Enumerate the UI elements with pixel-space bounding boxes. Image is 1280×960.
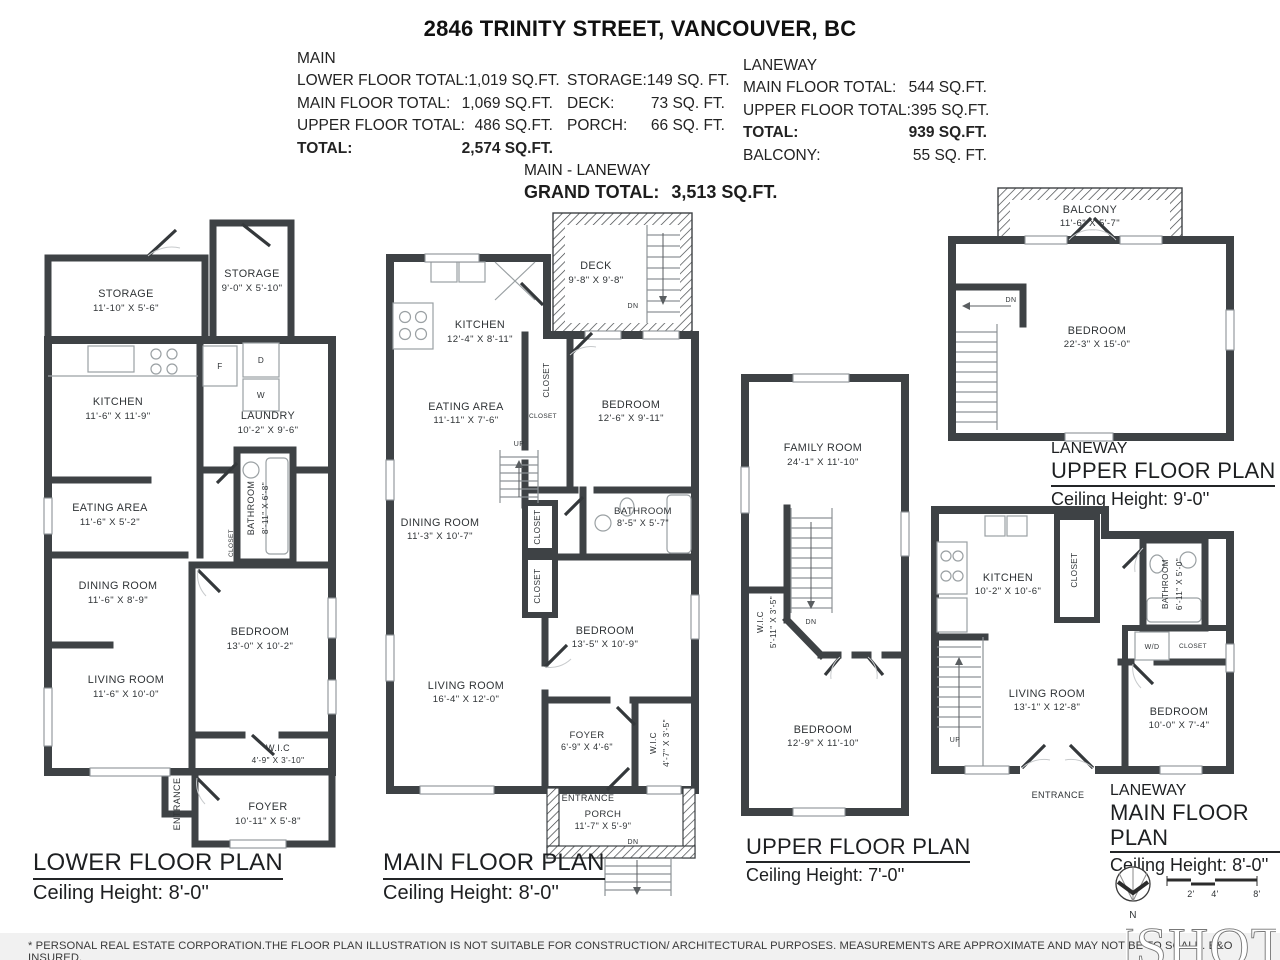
room-dims-living: 11'-6" X 10'-0" (93, 689, 159, 700)
room-label-living: LIVING ROOM (428, 680, 504, 692)
room-label-bedroom: BEDROOM (1150, 706, 1209, 718)
summary-row: DECK:73 SQ. FT. (567, 93, 725, 115)
room-label-wic: W.I.C (649, 732, 658, 754)
room-label-wic: W.I.C (756, 611, 765, 633)
room-label-foyer: FOYER (248, 801, 287, 813)
row-value: 939 SQ.FT. (909, 122, 987, 144)
row-value: 1,069 SQ.FT. (462, 93, 553, 115)
floor-plan-sheet: 2846 TRINITY STREET, VANCOUVER, BC MAIN … (0, 0, 1280, 960)
room-dims-family: 24'-1" X 11'-10" (787, 457, 859, 468)
room-dims-laundry: 10'-2" X 9'-6" (238, 425, 299, 436)
room-dims-bedroom: 12'-9" X 11'-10" (787, 738, 859, 749)
room-label-family: FAMILY ROOM (784, 442, 862, 454)
row-label: LOWER FLOOR TOTAL: (297, 70, 468, 92)
deck (553, 213, 692, 335)
row-label: UPPER FLOOR TOTAL: (743, 100, 911, 122)
entrance-label: ENTRANCE (562, 793, 615, 803)
grand-total-block: MAIN - LANEWAY GRAND TOTAL:3,513 SQ.FT. (524, 162, 777, 203)
lower-plan-caption: LOWER FLOOR PLAN Ceiling Height: 8'-0'' (33, 850, 283, 904)
fridge-label: F (217, 362, 222, 371)
room-label-bathroom: BATHROOM (246, 481, 256, 536)
lower-plan-title: LOWER FLOOR PLAN (33, 850, 283, 880)
scale-label-4: 4' (1211, 889, 1219, 899)
room-label-storage1: STORAGE (98, 288, 153, 300)
row-label: MAIN FLOOR TOTAL: (297, 93, 450, 115)
brand-logo-text: ISHOT (1126, 917, 1276, 960)
room-dims-bedroom1: 12'-6" X 9'-11" (598, 413, 664, 424)
room-dims-living: 13'-1" X 12'-8" (1014, 702, 1081, 713)
room-label-kitchen: KITCHEN (455, 319, 505, 331)
room-dims-dining: 11'-6" X 8'-9" (88, 595, 148, 606)
summary-row: UPPER FLOOR TOTAL:486 SQ.FT. (297, 115, 553, 137)
closet-label: CLOSET (1070, 552, 1079, 587)
laneway-main-title: MAIN FLOOR PLAN (1110, 801, 1280, 853)
room-dims-bedroom: 10'-0" X 7'-4" (1149, 720, 1210, 731)
grand-total-value: 3,513 SQ.FT. (671, 182, 777, 202)
summary-row-total: TOTAL:2,574 SQ.FT. (297, 138, 553, 160)
row-label: DECK: (567, 93, 614, 115)
room-dims-porch: 11'-7" X 5'-9" (575, 821, 632, 831)
dn-label: DN (628, 303, 639, 310)
room-label-dining: DINING ROOM (79, 580, 158, 592)
summary-row-total: TOTAL:939 SQ.FT. (743, 122, 987, 144)
up-label: UP (950, 737, 961, 744)
scale-bar: 2' 4' 8' (1167, 876, 1261, 899)
disclaimer-text: * PERSONAL REAL ESTATE CORPORATION.THE F… (28, 940, 1280, 960)
room-dims-wic: 4'-9" X 3'-10" (252, 756, 305, 765)
summary-main-col2: STORAGE:149 SQ. FT. DECK:73 SQ. FT. PORC… (567, 70, 725, 160)
room-label-bedroom: BEDROOM (794, 724, 853, 736)
room-label-balcony: BALCONY (1063, 204, 1117, 216)
brand-logo: ISHOT (1126, 914, 1276, 960)
row-value: 66 SQ. FT. (651, 115, 725, 137)
room-dims-foyer: 6'-9" X 4'-6" (561, 742, 613, 752)
room-label-porch: PORCH (585, 809, 622, 820)
dryer-label: D (258, 356, 264, 365)
washer-dryer-label: W/D (1145, 644, 1160, 651)
entrance-label: ENTRANCE (1032, 790, 1085, 800)
laneway-upper-title: UPPER FLOOR PLAN (1051, 459, 1275, 487)
summary-laneway-heading: LANEWAY (743, 55, 987, 77)
room-dims-wic: 5'-11" X 3'-5" (769, 596, 778, 648)
room-dims-balcony: 11'-6" X 5'-7" (1060, 218, 1120, 229)
grand-total-subtitle: MAIN - LANEWAY (524, 162, 777, 180)
room-label-kitchen: KITCHEN (93, 396, 143, 408)
summary-row: MAIN FLOOR TOTAL:544 SQ.FT. (743, 77, 987, 99)
room-dims-living: 16'-4" X 12'-0" (433, 694, 500, 705)
room-label-eating: EATING AREA (72, 502, 148, 514)
room-dims-kitchen: 12'-4" X 8'-11" (447, 334, 513, 345)
row-value: 2,574 SQ.FT. (462, 138, 553, 160)
room-dims-bedroom: 22'-3" X 15'-0" (1064, 339, 1131, 350)
summary-row: PORCH:66 SQ. FT. (567, 115, 725, 137)
room-dims-wic: 4'-7" X 3'-5" (662, 719, 671, 767)
scale-label-8: 8' (1253, 889, 1261, 899)
room-dims-bathroom: 6'-11" X 5'-0" (1175, 558, 1184, 610)
room-label-eating: EATING AREA (428, 401, 504, 413)
summary-laneway: LANEWAY MAIN FLOOR TOTAL:544 SQ.FT. UPPE… (743, 55, 987, 167)
scale-label-2: 2' (1187, 889, 1195, 899)
room-label-bedroom1: BEDROOM (602, 399, 661, 411)
main-plan-caption: MAIN FLOOR PLAN Ceiling Height: 8'-0'' (383, 850, 605, 904)
main-plan-title: MAIN FLOOR PLAN (383, 850, 605, 880)
grand-total-label: GRAND TOTAL: (524, 182, 659, 202)
laneway-upper-tag: LANEWAY (1051, 440, 1275, 458)
grand-total-line: GRAND TOTAL:3,513 SQ.FT. (524, 182, 777, 203)
upper-plan-title: UPPER FLOOR PLAN (746, 835, 970, 863)
washer-label: W (257, 391, 265, 400)
compass-icon: N (1116, 867, 1150, 921)
row-label: TOTAL: (743, 122, 798, 144)
row-value: 55 SQ. FT. (913, 145, 987, 167)
room-label-living: LIVING ROOM (88, 674, 164, 686)
closet-label: CLOSET (228, 529, 235, 557)
room-dims-eating: 11'-6" X 5'-2" (80, 517, 140, 528)
room-label-foyer: FOYER (569, 730, 604, 741)
dn-label: DN (628, 839, 639, 846)
summary-row: LOWER FLOOR TOTAL:1,019 SQ.FT. (297, 70, 553, 92)
summary-row: MAIN FLOOR TOTAL:1,069 SQ.FT. (297, 93, 553, 115)
room-dims-foyer: 10'-11" X 5'-8" (235, 816, 301, 827)
summary-row: STORAGE:149 SQ. FT. (567, 70, 725, 92)
room-label-bedroom: BEDROOM (231, 626, 290, 638)
room-dims-storage1: 11'-10" X 5'-6" (93, 303, 159, 314)
room-dims-kitchen: 10'-2" X 10'-6" (975, 586, 1042, 597)
closet-label-small: CLOSET (529, 413, 557, 420)
room-label-bedroom2: BEDROOM (576, 625, 635, 637)
upper-floor-plan-svg: FAMILY ROOM 24'-1" X 11'-10" DN W.I.C 5'… (735, 372, 920, 832)
row-label: MAIN FLOOR TOTAL: (743, 77, 896, 99)
room-label-laundry: LAUNDRY (241, 410, 295, 422)
page-title: 2846 TRINITY STREET, VANCOUVER, BC (0, 16, 1280, 42)
lower-plan-ceiling: Ceiling Height: 8'-0'' (33, 882, 283, 904)
room-dims-eating: 11'-11" X 7'-6" (433, 415, 498, 426)
room-label-wic: W.I.C (266, 743, 290, 753)
upper-plan-caption: UPPER FLOOR PLAN Ceiling Height: 7'-0'' (746, 835, 970, 885)
row-label: STORAGE: (567, 70, 647, 92)
room-label-kitchen: KITCHEN (983, 572, 1033, 584)
room-dims-bedroom2: 13'-5" X 10'-9" (572, 639, 639, 650)
row-label: UPPER FLOOR TOTAL: (297, 115, 465, 137)
room-label-bathroom: BATHROOM (1161, 559, 1170, 609)
room-label-storage2: STORAGE (224, 268, 279, 280)
main-floor-plan-svg: DECK 9'-8" X 9'-8" DN KITCHEN 12'-4" X 8… (375, 205, 710, 905)
lower-floor-plan-svg: STORAGE 11'-10" X 5'-6" STORAGE 9'-0" X … (30, 218, 340, 853)
row-value: 1,019 SQ.FT. (468, 70, 559, 92)
room-dims-kitchen: 11'-6" X 11'-9" (85, 411, 150, 422)
row-value: 544 SQ.FT. (909, 77, 987, 99)
room-dims-deck: 9'-8" X 9'-8" (568, 275, 623, 286)
summary-main: MAIN LOWER FLOOR TOTAL:1,019 SQ.FT. MAIN… (297, 48, 725, 160)
room-label-bathroom: BATHROOM (614, 506, 672, 517)
room-dims-bedroom: 13'-0" X 10'-2" (227, 641, 294, 652)
row-value: 149 SQ. FT. (647, 70, 730, 92)
row-label: PORCH: (567, 115, 627, 137)
main-plan-ceiling: Ceiling Height: 8'-0'' (383, 882, 605, 904)
dn-label: DN (806, 619, 817, 626)
room-label-dining: DINING ROOM (401, 517, 480, 529)
summary-row: BALCONY:55 SQ. FT. (743, 145, 987, 167)
dn-label: DN (1006, 297, 1017, 304)
summary-main-col1: LOWER FLOOR TOTAL:1,019 SQ.FT. MAIN FLOO… (297, 70, 553, 160)
room-label-living: LIVING ROOM (1009, 688, 1085, 700)
room-label-bedroom: BEDROOM (1068, 325, 1127, 337)
up-label: UP (514, 441, 525, 448)
closet-label: CLOSET (542, 362, 551, 397)
summary-row: UPPER FLOOR TOTAL:395 SQ.FT. (743, 100, 987, 122)
room-dims-storage2: 9'-0" X 5'-10" (222, 283, 283, 294)
closet-label: CLOSET (1179, 643, 1207, 650)
room-label-deck: DECK (580, 260, 612, 272)
laneway-main-plan-svg: KITCHEN 10'-2" X 10'-6" CLOSET BATHROOM … (925, 502, 1240, 824)
row-value: 395 SQ.FT. (911, 100, 989, 122)
entrance-label: ENTRANCE (172, 778, 182, 831)
summary-main-heading: MAIN (297, 48, 725, 70)
laneway-main-tag: LANEWAY (1110, 782, 1280, 800)
upper-plan-ceiling: Ceiling Height: 7'-0'' (746, 865, 970, 885)
row-value: 73 SQ. FT. (651, 93, 725, 115)
closet-label: CLOSET (533, 568, 542, 603)
laneway-upper-plan-svg: BALCONY 11'-6" X 5'-7" DN BEDROOM 22'-3"… (945, 182, 1235, 444)
room-dims-bathroom: 8'-5" X 5'-7" (617, 518, 669, 528)
room-dims-dining: 11'-3" X 10'-7" (407, 531, 473, 542)
room-dims-bathroom: 8'-11" X 6'-8" (261, 482, 270, 534)
row-label: TOTAL: (297, 138, 352, 160)
row-value: 486 SQ.FT. (475, 115, 553, 137)
laneway-upper-caption: LANEWAY UPPER FLOOR PLAN Ceiling Height:… (1051, 440, 1275, 509)
closet-label: CLOSET (533, 509, 542, 544)
